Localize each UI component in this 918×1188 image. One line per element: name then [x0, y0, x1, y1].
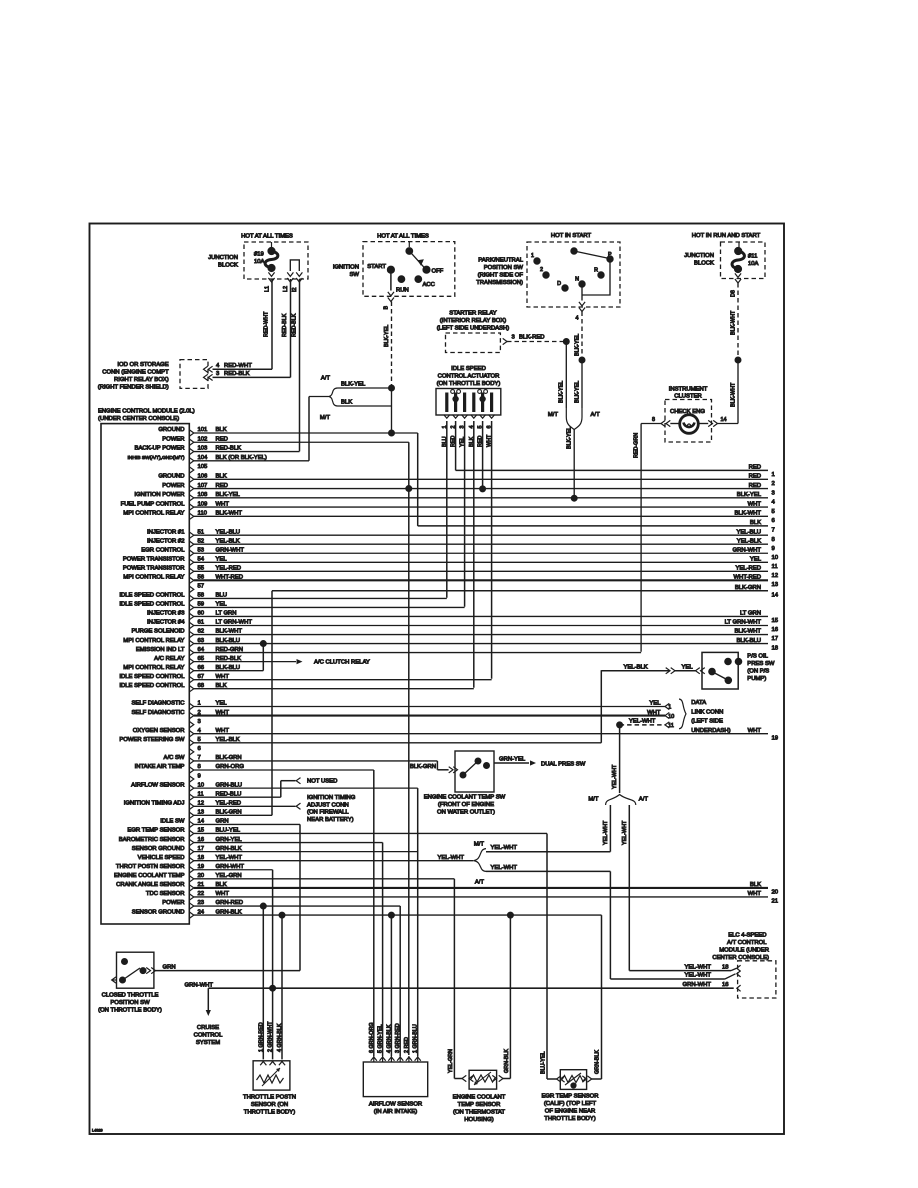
svg-text:POSITION SW: POSITION SW	[484, 265, 524, 271]
svg-text:POWER: POWER	[162, 436, 184, 442]
svg-text:A/T: A/T	[475, 880, 485, 886]
svg-text:THROT POSTN SENSOR: THROT POSTN SENSOR	[116, 864, 185, 870]
svg-text:OXYGEN SENSOR: OXYGEN SENSOR	[133, 728, 185, 734]
svg-text:21: 21	[772, 899, 779, 905]
svg-text:BLK-WHT: BLK-WHT	[734, 511, 761, 517]
svg-text:(RIGHT FENDER SHIELD): (RIGHT FENDER SHIELD)	[98, 385, 169, 391]
svg-text:GRN-WHT: GRN-WHT	[733, 547, 762, 553]
svg-text:IGNITION POWER: IGNITION POWER	[134, 492, 184, 498]
svg-text:57: 57	[198, 584, 205, 590]
svg-text:WHT: WHT	[748, 501, 762, 507]
svg-text:BLK-BLU: BLK-BLU	[216, 665, 241, 671]
svg-text:ON WATER OUTLET): ON WATER OUTLET)	[437, 810, 495, 816]
svg-text:YEL: YEL	[216, 602, 228, 608]
svg-text:BLK-BLU: BLK-BLU	[736, 638, 761, 644]
svg-text:16: 16	[772, 627, 779, 633]
svg-text:(RIGHT SIDE OF: (RIGHT SIDE OF	[478, 273, 524, 279]
svg-text:DATA: DATA	[691, 700, 706, 706]
svg-text:FUEL PUMP CONTROL: FUEL PUMP CONTROL	[121, 501, 186, 507]
svg-text:TEMP SENSOR: TEMP SENSOR	[458, 1102, 501, 1108]
svg-text:15: 15	[772, 618, 779, 624]
svg-text:YEL-BLK: YEL-BLK	[216, 538, 240, 544]
svg-text:BLK-GRN: BLK-GRN	[410, 764, 436, 770]
svg-text:L4929: L4929	[92, 1129, 103, 1133]
svg-text:RED: RED	[216, 436, 228, 442]
svg-text:BLK: BLK	[216, 683, 227, 689]
svg-text:2: 2	[772, 481, 775, 487]
svg-text:24: 24	[198, 909, 205, 915]
svg-text:(CALIF) (TOP LEFT: (CALIF) (TOP LEFT	[544, 1101, 597, 1107]
svg-text:12: 12	[772, 573, 779, 579]
svg-text:104: 104	[198, 455, 209, 461]
svg-text:BLOCK: BLOCK	[694, 261, 714, 267]
svg-text:AIRFLOW SENSOR: AIRFLOW SENSOR	[131, 782, 184, 788]
svg-text:108: 108	[198, 492, 209, 498]
svg-text:(INTERIOR RELAY BOX): (INTERIOR RELAY BOX)	[440, 318, 507, 324]
svg-text:YEL-BLU: YEL-BLU	[216, 529, 241, 535]
svg-text:53: 53	[198, 547, 205, 553]
svg-text:D8: D8	[731, 290, 737, 297]
svg-text:10: 10	[668, 714, 674, 720]
svg-text:11: 11	[668, 723, 674, 729]
svg-text:BLK-YEL: BLK-YEL	[559, 381, 565, 403]
svg-text:POWER STEERING SW: POWER STEERING SW	[119, 737, 185, 743]
svg-text:(ON THROTTLE BODY): (ON THROTTLE BODY)	[98, 1007, 162, 1013]
svg-text:POWER: POWER	[162, 483, 184, 489]
svg-text:4 GRN-BLK: 4 GRN-BLK	[386, 1024, 392, 1053]
svg-text:WHT: WHT	[216, 501, 230, 507]
svg-text:RED-BLU: RED-BLU	[216, 791, 242, 797]
svg-text:HOT IN RUN AND START: HOT IN RUN AND START	[692, 233, 761, 239]
svg-text:YEL-WHT: YEL-WHT	[491, 865, 518, 871]
svg-text:OFF: OFF	[432, 269, 444, 275]
svg-text:INHIB SW(A/T),GND(M/T): INHIB SW(A/T),GND(M/T)	[127, 455, 184, 461]
svg-text:M/T: M/T	[320, 415, 331, 421]
svg-text:8: 8	[652, 417, 655, 423]
svg-text:14: 14	[198, 819, 205, 825]
svg-text:RED-GRN: RED-GRN	[634, 433, 640, 458]
svg-text:YEL-WHT: YEL-WHT	[603, 820, 609, 845]
svg-text:LT GRN-WHT: LT GRN-WHT	[216, 620, 253, 626]
svg-text:RED-BLK: RED-BLK	[292, 313, 298, 337]
svg-text:EGR CONTROL: EGR CONTROL	[141, 547, 185, 553]
svg-text:PRES SW: PRES SW	[747, 661, 775, 667]
svg-text:PUMP): PUMP)	[747, 676, 766, 682]
svg-text:BLK (OR BLK-YEL): BLK (OR BLK-YEL)	[216, 455, 267, 461]
svg-text:67: 67	[198, 674, 205, 680]
svg-text:IGNITION: IGNITION	[333, 265, 359, 271]
svg-text:GRN-RED: GRN-RED	[216, 900, 244, 906]
svg-text:(FRONT OF ENGINE: (FRONT OF ENGINE	[438, 802, 494, 808]
svg-text:RED-BLK: RED-BLK	[216, 656, 242, 662]
svg-text:10A: 10A	[748, 261, 759, 267]
svg-text:10: 10	[772, 555, 779, 561]
svg-text:1: 1	[772, 472, 775, 478]
svg-text:68: 68	[198, 683, 205, 689]
svg-text:LT GRN: LT GRN	[740, 611, 761, 617]
svg-text:YEL-WHT: YEL-WHT	[437, 855, 464, 861]
svg-text:BLU-YEL: BLU-YEL	[541, 1052, 547, 1074]
svg-text:GRN-BLK: GRN-BLK	[504, 1049, 510, 1073]
svg-text:14: 14	[721, 417, 727, 423]
svg-text:ELC 4-SPEED: ELC 4-SPEED	[728, 933, 766, 939]
svg-text:ENGINE CONTROL MODULE (2.0L): ENGINE CONTROL MODULE (2.0L)	[98, 409, 195, 415]
svg-text:5 GRN-YEL: 5 GRN-YEL	[378, 1025, 384, 1053]
svg-text:TDC SENSOR: TDC SENSOR	[146, 891, 185, 897]
svg-text:YEL-WHT: YEL-WHT	[684, 973, 711, 979]
svg-text:ENGINE COOLANT TEMP SW: ENGINE COOLANT TEMP SW	[424, 795, 506, 801]
svg-text:POWER: POWER	[162, 900, 184, 906]
svg-text:BLU-YEL: BLU-YEL	[216, 828, 241, 834]
svg-text:ENGINE COOLANT: ENGINE COOLANT	[453, 1094, 506, 1100]
svg-text:GROUND: GROUND	[158, 427, 184, 433]
svg-text:B: B	[384, 306, 390, 310]
svg-text:ADJUST CONN: ADJUST CONN	[307, 802, 349, 808]
svg-text:INTAKE AIR TEMP: INTAKE AIR TEMP	[135, 764, 185, 770]
svg-text:101: 101	[198, 427, 208, 433]
svg-text:NEAR BATTERY): NEAR BATTERY)	[307, 817, 354, 823]
svg-text:YEL: YEL	[216, 556, 228, 562]
svg-text:YEL-WHT: YEL-WHT	[491, 845, 518, 851]
svg-text:THROTTLE POSTN: THROTTLE POSTN	[243, 1095, 296, 1101]
svg-text:GRN: GRN	[216, 819, 229, 825]
svg-text:1: 1	[668, 705, 671, 711]
svg-text:OF ENGINE NEAR: OF ENGINE NEAR	[545, 1109, 595, 1115]
svg-text:20: 20	[198, 873, 205, 879]
svg-text:55: 55	[198, 566, 205, 572]
svg-text:BLK-GRN: BLK-GRN	[735, 585, 761, 591]
svg-text:JUNCTION: JUNCTION	[208, 255, 238, 261]
svg-text:RED-BLK: RED-BLK	[282, 313, 288, 337]
svg-text:GRN-WHT: GRN-WHT	[683, 982, 712, 988]
svg-text:60: 60	[198, 611, 205, 617]
svg-text:16: 16	[198, 837, 205, 843]
svg-text:SELF DIAGNOSTIC: SELF DIAGNOSTIC	[131, 710, 185, 716]
svg-text:SW: SW	[350, 272, 360, 278]
svg-text:CENTER CONSOLE): CENTER CONSOLE)	[712, 955, 769, 961]
svg-text:9: 9	[772, 546, 775, 552]
svg-text:1 GRN-RED: 1 GRN-RED	[258, 1022, 264, 1052]
svg-text:BLK-WHT: BLK-WHT	[216, 511, 243, 517]
svg-text:13: 13	[198, 810, 205, 816]
svg-text:RED: RED	[749, 483, 761, 489]
svg-text:VEHICLE SPEED: VEHICLE SPEED	[138, 855, 185, 861]
svg-text:23: 23	[198, 900, 205, 906]
svg-text:22: 22	[198, 891, 205, 897]
svg-text:RED-GRN: RED-GRN	[216, 647, 244, 653]
svg-text:GRN-BLK: GRN-BLK	[216, 909, 242, 915]
svg-text:CLOSED THROTTLE: CLOSED THROTTLE	[102, 992, 159, 998]
svg-text:11: 11	[198, 791, 204, 797]
svg-text:INJECTOR #3: INJECTOR #3	[147, 611, 185, 617]
svg-text:2 RED: 2 RED	[404, 1037, 410, 1053]
svg-text:12: 12	[198, 800, 205, 806]
svg-text:YEL-BLU: YEL-BLU	[736, 529, 761, 535]
svg-text:P/S OIL: P/S OIL	[747, 654, 768, 660]
svg-text:#11: #11	[748, 254, 757, 260]
svg-text:POWER TRANSISTOR: POWER TRANSISTOR	[123, 566, 185, 572]
svg-text:BLK-YEL: BLK-YEL	[341, 382, 366, 388]
svg-text:YEL-WHT: YEL-WHT	[684, 964, 711, 970]
svg-text:BLK-YEL: BLK-YEL	[574, 334, 580, 356]
svg-text:BLK-WHT: BLK-WHT	[731, 382, 737, 407]
svg-text:START: START	[367, 264, 386, 270]
svg-text:YEL-BLK: YEL-BLK	[737, 538, 761, 544]
svg-text:YEL-RED: YEL-RED	[216, 800, 242, 806]
svg-text:BLK-YEL: BLK-YEL	[737, 492, 762, 498]
svg-text:BLU: BLU	[216, 593, 227, 599]
svg-text:PARK/NEUTRAL: PARK/NEUTRAL	[478, 258, 523, 264]
svg-text:54: 54	[198, 556, 205, 562]
svg-text:LINK CONN: LINK CONN	[691, 709, 723, 715]
svg-text:CRUISE: CRUISE	[197, 1025, 219, 1031]
svg-text:RED: RED	[749, 465, 761, 471]
svg-text:R: R	[594, 268, 598, 274]
svg-text:MPI CONTROL RELAY: MPI CONTROL RELAY	[123, 511, 184, 517]
svg-text:POSITION SW: POSITION SW	[110, 1000, 150, 1006]
svg-text:YEL-WHT: YEL-WHT	[612, 764, 618, 789]
svg-text:GROUND: GROUND	[158, 474, 184, 480]
svg-text:SENSOR (ON: SENSOR (ON	[251, 1102, 288, 1108]
svg-text:IOD OR STORAGE: IOD OR STORAGE	[117, 362, 168, 368]
svg-text:(LEFT SIDE: (LEFT SIDE	[691, 719, 723, 725]
svg-text:BLK-YEL: BLK-YEL	[574, 381, 580, 403]
svg-text:WHT-RED: WHT-RED	[734, 575, 762, 581]
svg-text:18: 18	[722, 964, 729, 970]
svg-text:TRANSMISSION): TRANSMISSION)	[476, 280, 523, 286]
svg-text:YEL-WHT: YEL-WHT	[622, 820, 628, 845]
svg-text:BLK: BLK	[750, 882, 761, 888]
svg-text:GRN-YEL: GRN-YEL	[216, 837, 243, 843]
svg-text:BLK-WHT: BLK-WHT	[731, 310, 737, 335]
svg-text:15: 15	[198, 828, 205, 834]
svg-text:WHT: WHT	[216, 674, 230, 680]
svg-text:MPI CONTROL RELAY: MPI CONTROL RELAY	[123, 638, 184, 644]
svg-text:YEL-GRN: YEL-GRN	[216, 873, 242, 879]
svg-text:4 GRN-BLK: 4 GRN-BLK	[277, 1023, 283, 1052]
svg-text:59: 59	[198, 602, 205, 608]
svg-text:DUAL PRES SW: DUAL PRES SW	[541, 762, 586, 768]
svg-text:A/T CONTROL: A/T CONTROL	[727, 940, 767, 946]
svg-text:HOT AT ALL TIMES: HOT AT ALL TIMES	[377, 234, 429, 240]
svg-text:BLK-GRN: BLK-GRN	[216, 755, 242, 761]
svg-text:10: 10	[198, 782, 205, 788]
svg-text:A/T: A/T	[591, 412, 601, 418]
svg-text:WHT: WHT	[647, 710, 661, 716]
svg-text:POWER TRANSISTOR: POWER TRANSISTOR	[123, 556, 185, 562]
svg-text:IDLE SPEED CONTROL: IDLE SPEED CONTROL	[119, 674, 185, 680]
svg-text:#19: #19	[254, 252, 264, 258]
svg-text:13: 13	[772, 582, 779, 588]
svg-text:7: 7	[198, 755, 201, 761]
svg-text:19: 19	[772, 735, 779, 741]
svg-text:52: 52	[198, 538, 205, 544]
svg-text:RED: RED	[216, 483, 228, 489]
svg-text:SELF DIAGNOSTIC: SELF DIAGNOSTIC	[131, 701, 185, 707]
svg-text:MPI CONTROL RELAY: MPI CONTROL RELAY	[123, 665, 184, 671]
svg-text:51: 51	[198, 529, 205, 535]
svg-text:4: 4	[576, 316, 579, 322]
svg-text:WHT: WHT	[748, 891, 762, 897]
svg-text:SENSOR GROUND: SENSOR GROUND	[132, 909, 185, 915]
svg-text:BLK: BLK	[341, 400, 352, 406]
svg-text:JUNCTION: JUNCTION	[684, 253, 714, 259]
svg-text:RUN: RUN	[396, 288, 409, 294]
svg-text:YEL-BLK: YEL-BLK	[623, 664, 647, 670]
svg-text:2 GRN-WHT: 2 GRN-WHT	[268, 1021, 274, 1052]
svg-text:2: 2	[540, 267, 543, 273]
svg-text:CONN (ENGINE COMPT: CONN (ENGINE COMPT	[102, 370, 169, 376]
svg-text:CONTROL ACTUATOR: CONTROL ACTUATOR	[438, 374, 500, 380]
svg-text:103: 103	[198, 446, 209, 452]
svg-text:A/C SW: A/C SW	[164, 755, 185, 761]
svg-text:(IN AIR INTAKE): (IN AIR INTAKE)	[374, 1109, 417, 1115]
svg-text:(UNDER CENTER CONSOLE): (UNDER CENTER CONSOLE)	[98, 416, 179, 422]
svg-text:GRN-WHT: GRN-WHT	[216, 864, 245, 870]
svg-text:I2: I2	[292, 288, 298, 293]
svg-text:64: 64	[198, 647, 205, 653]
svg-text:HOT AT ALL TIMES: HOT AT ALL TIMES	[241, 234, 293, 240]
svg-text:YEL: YEL	[216, 701, 228, 707]
svg-text:BLK: BLK	[216, 474, 227, 480]
svg-text:GRN-BLK: GRN-BLK	[216, 846, 242, 852]
svg-text:BLK-WHT: BLK-WHT	[216, 629, 243, 635]
svg-text:CONTROL: CONTROL	[194, 1033, 224, 1039]
svg-text:BLK-YEL: BLK-YEL	[216, 492, 241, 498]
svg-text:HOUSING): HOUSING)	[464, 1117, 493, 1123]
svg-text:THROTTLE BODY): THROTTLE BODY)	[244, 1110, 295, 1116]
svg-text:IDLE SPEED CONTROL: IDLE SPEED CONTROL	[119, 683, 185, 689]
svg-text:GRN-WHT: GRN-WHT	[216, 547, 245, 553]
svg-text:109: 109	[198, 501, 208, 507]
svg-text:UNDERDASH): UNDERDASH)	[691, 728, 730, 734]
svg-text:SYSTEM: SYSTEM	[196, 1040, 220, 1046]
svg-text:IDLE SW: IDLE SW	[160, 819, 185, 825]
svg-text:1: 1	[198, 701, 201, 707]
svg-text:107: 107	[198, 483, 208, 489]
svg-text:N: N	[575, 277, 579, 283]
svg-text:YEL-RED: YEL-RED	[216, 566, 242, 572]
svg-text:A/C RELAY: A/C RELAY	[154, 656, 184, 662]
svg-text:(LEFT SIDE UNDERDASH): (LEFT SIDE UNDERDASH)	[437, 326, 510, 332]
svg-text:A/T: A/T	[321, 376, 331, 382]
svg-text:INJECTOR #2: INJECTOR #2	[147, 538, 185, 544]
svg-text:GRN: GRN	[163, 964, 176, 970]
svg-text:ACC: ACC	[423, 282, 436, 288]
svg-text:GRN-BLK: GRN-BLK	[595, 1050, 601, 1074]
svg-text:61: 61	[198, 620, 205, 626]
svg-text:16: 16	[722, 982, 729, 988]
svg-text:IDLE SPEED CONTROL: IDLE SPEED CONTROL	[119, 593, 185, 599]
svg-text:THROTTLE BODY): THROTTLE BODY)	[544, 1116, 595, 1122]
svg-text:IGNITION TIMING: IGNITION TIMING	[307, 795, 356, 801]
svg-text:BLK-RED: BLK-RED	[519, 335, 545, 341]
svg-text:INJECTOR #4: INJECTOR #4	[147, 620, 185, 626]
svg-text:YEL-GRN: YEL-GRN	[448, 1049, 454, 1073]
svg-text:ENGINE COOLANT TEMP: ENGINE COOLANT TEMP	[114, 873, 185, 879]
svg-text:RED-WHT: RED-WHT	[224, 363, 252, 369]
svg-text:MPI CONTROL RELAY: MPI CONTROL RELAY	[123, 575, 184, 581]
svg-text:BLK-WHT: BLK-WHT	[734, 629, 761, 635]
svg-text:L2: L2	[283, 286, 289, 292]
svg-text:10A: 10A	[254, 259, 265, 265]
svg-text:WHT: WHT	[748, 728, 762, 734]
svg-text:105: 105	[198, 464, 209, 470]
svg-text:62: 62	[198, 629, 205, 635]
svg-text:AIRFLOW SENSOR: AIRFLOW SENSOR	[369, 1101, 422, 1107]
svg-text:RIGHT RELAY BOX): RIGHT RELAY BOX)	[114, 377, 169, 383]
svg-text:17: 17	[772, 636, 779, 642]
svg-text:EMISSION IND LT: EMISSION IND LT	[136, 647, 185, 653]
svg-text:(ON THERMOSTAT: (ON THERMOSTAT	[453, 1109, 505, 1115]
svg-text:BLK: BLK	[216, 427, 227, 433]
svg-text:HOT IN START: HOT IN START	[551, 233, 592, 239]
svg-text:(ON FIREWALL: (ON FIREWALL	[307, 810, 349, 816]
svg-text:D: D	[557, 281, 561, 287]
svg-text:1 GRN-BLU: 1 GRN-BLU	[413, 1024, 419, 1053]
svg-text:RED: RED	[749, 474, 761, 480]
svg-text:NOT USED: NOT USED	[307, 779, 337, 785]
svg-text:WHT: WHT	[216, 728, 230, 734]
svg-text:WHT: WHT	[216, 891, 230, 897]
svg-text:(ON THROTTLE BODY): (ON THROTTLE BODY)	[437, 381, 501, 387]
svg-text:YEL: YEL	[750, 556, 762, 562]
svg-text:14: 14	[772, 592, 779, 598]
svg-text:YEL-WHT: YEL-WHT	[629, 719, 656, 725]
svg-text:GRN-BLU: GRN-BLU	[216, 782, 243, 788]
svg-text:1: 1	[531, 253, 534, 259]
svg-text:BAROMETRIC SENSOR: BAROMETRIC SENSOR	[119, 837, 185, 843]
svg-text:RED-BLK: RED-BLK	[224, 371, 250, 377]
svg-text:GRN-ORG: GRN-ORG	[216, 764, 245, 770]
svg-text:11: 11	[772, 564, 778, 570]
svg-text:BLK-GRN: BLK-GRN	[216, 810, 242, 816]
svg-text:63: 63	[198, 638, 205, 644]
svg-text:9: 9	[198, 773, 201, 779]
svg-text:IDLE SPEED CONTROL: IDLE SPEED CONTROL	[119, 602, 185, 608]
svg-text:P: P	[608, 252, 612, 258]
svg-text:RED-WHT: RED-WHT	[264, 311, 270, 337]
svg-text:106: 106	[198, 474, 209, 480]
svg-text:INSTRUMENT: INSTRUMENT	[669, 387, 708, 393]
svg-text:17: 17	[198, 846, 205, 852]
svg-text:INJECTOR #1: INJECTOR #1	[147, 529, 185, 535]
svg-text:YEL-BLK: YEL-BLK	[216, 737, 240, 743]
svg-text:A/T: A/T	[639, 797, 649, 803]
svg-text:18: 18	[198, 855, 205, 861]
svg-text:L1: L1	[265, 286, 271, 292]
svg-text:19: 19	[198, 864, 205, 870]
svg-text:BLOCK: BLOCK	[218, 263, 238, 269]
svg-text:(ON P/S: (ON P/S	[747, 669, 769, 675]
svg-text:SENSOR GROUND: SENSOR GROUND	[132, 846, 185, 852]
svg-text:M/T: M/T	[474, 841, 485, 847]
svg-text:110: 110	[198, 511, 208, 517]
svg-text:YEL: YEL	[682, 664, 694, 670]
svg-text:BLK-BLU: BLK-BLU	[216, 638, 241, 644]
svg-text:LT GRN-WHT: LT GRN-WHT	[725, 620, 762, 626]
svg-text:LT GRN: LT GRN	[216, 611, 237, 617]
svg-text:BLK-YEL: BLK-YEL	[567, 427, 573, 449]
svg-text:65: 65	[198, 656, 205, 662]
svg-text:66: 66	[198, 665, 205, 671]
svg-text:3 GRN-RED: 3 GRN-RED	[395, 1023, 401, 1053]
svg-text:PURGE SOLENOID: PURGE SOLENOID	[131, 629, 184, 635]
svg-text:RED-BLK: RED-BLK	[216, 446, 242, 452]
svg-text:IGNITION TIMING ADJ: IGNITION TIMING ADJ	[124, 800, 185, 806]
svg-text:7: 7	[772, 528, 775, 534]
svg-text:EGR TEMP SENSOR: EGR TEMP SENSOR	[541, 1094, 598, 1100]
